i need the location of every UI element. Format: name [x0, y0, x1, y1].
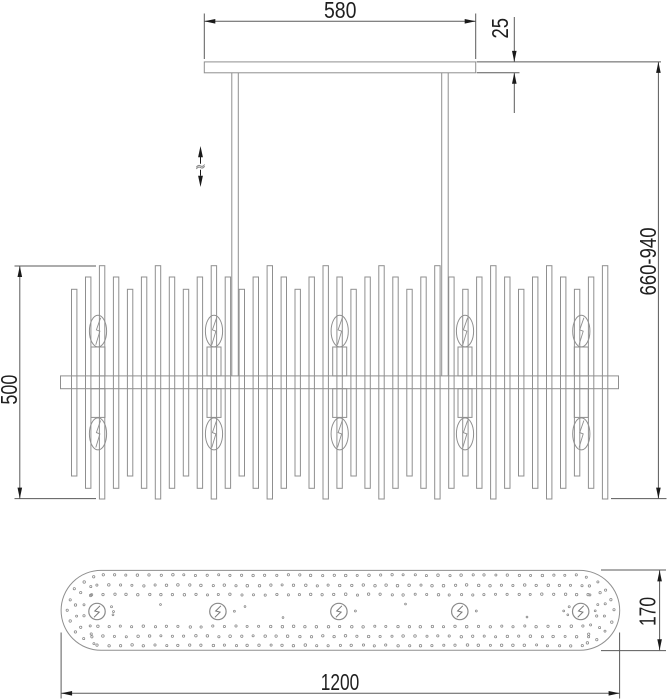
svg-text:25: 25	[487, 18, 513, 39]
svg-text:580: 580	[324, 0, 357, 23]
svg-text:500: 500	[0, 375, 22, 405]
svg-text:660-940: 660-940	[635, 228, 661, 296]
svg-text:170: 170	[635, 597, 661, 626]
svg-text:1200: 1200	[321, 669, 360, 695]
